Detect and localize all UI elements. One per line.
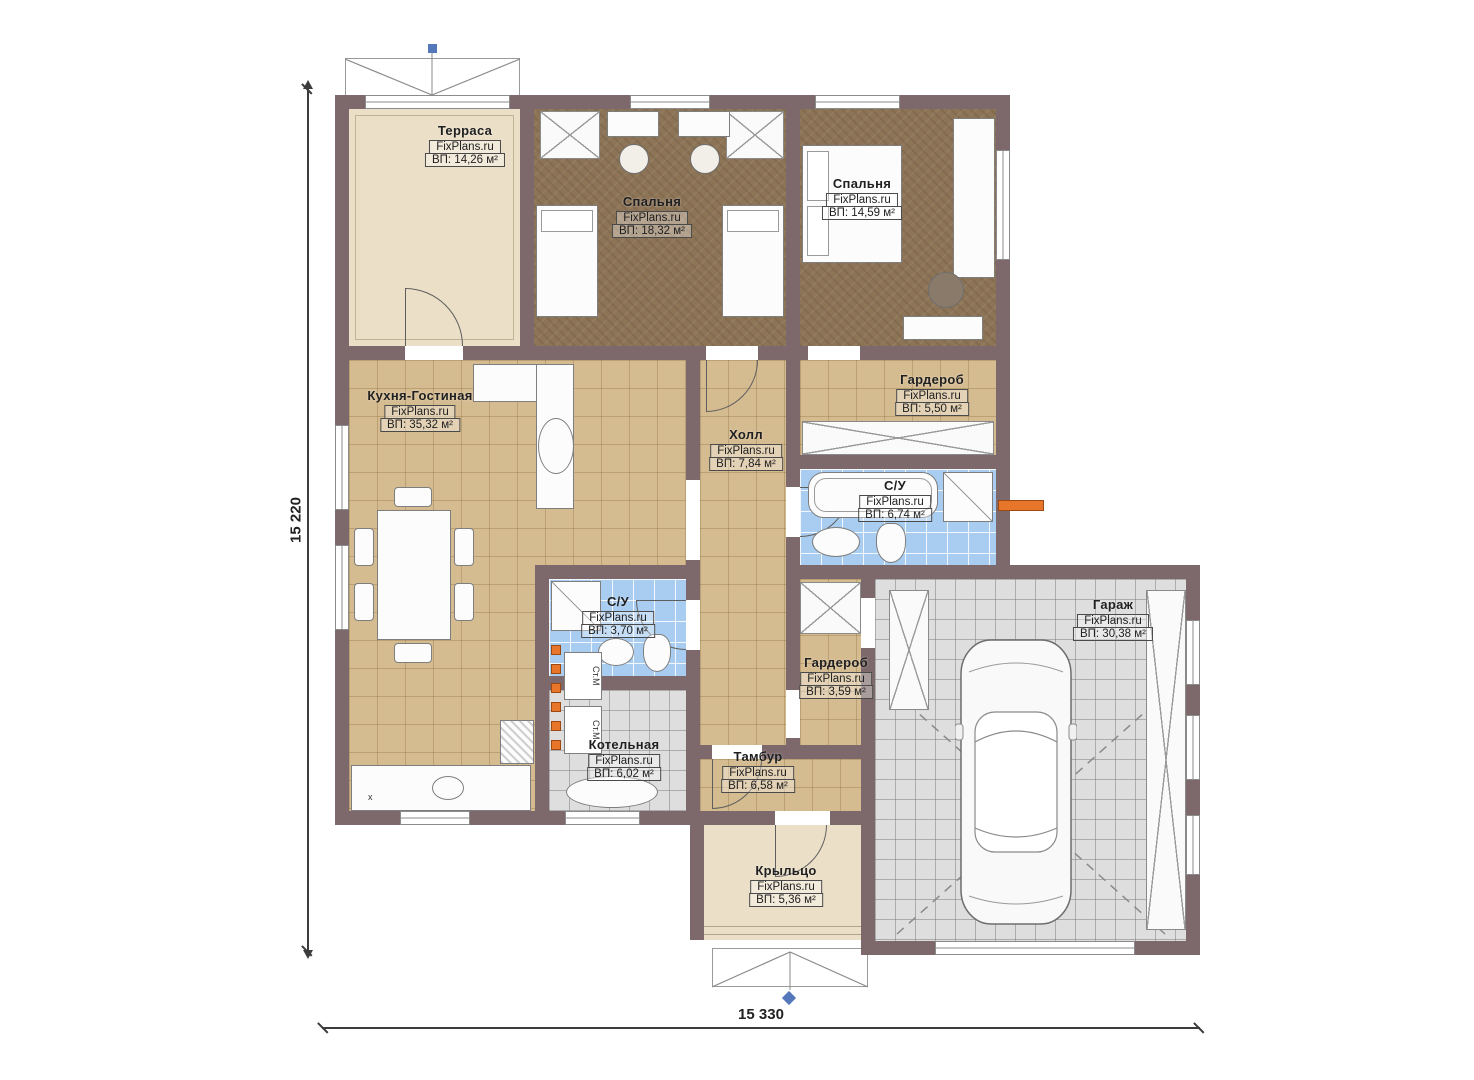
marker-square-blue — [428, 44, 437, 53]
room-name: Спальня — [612, 194, 692, 209]
dining-chair — [394, 643, 432, 663]
door-gap-garage-side — [861, 598, 875, 648]
window-garage-right-1 — [1186, 620, 1200, 685]
toilet — [876, 523, 906, 563]
room-label-kitchen: Кухня-Гостиная FixPlans.ru ВП: 35,32 м² — [367, 388, 472, 432]
room-label-bath2: С/У FixPlans.ru ВП: 3,70 м² — [581, 594, 655, 638]
bed-single — [536, 205, 598, 317]
room-area: ВП: 6,74 м² — [858, 508, 932, 522]
office-chair — [619, 144, 649, 174]
dining-chair — [454, 528, 474, 566]
room-name: Гараж — [1073, 597, 1153, 612]
toilet — [643, 634, 671, 672]
room-label-porch: Крыльцо FixPlans.ru ВП: 5,36 м² — [749, 863, 823, 907]
radiator-dot — [551, 702, 561, 712]
wall-bath2-top — [535, 565, 700, 579]
room-brand: FixPlans.ru — [1077, 614, 1149, 628]
room-name: С/У — [581, 594, 655, 609]
door-gap-bath1 — [786, 487, 800, 537]
room-area: ВП: 3,70 м² — [581, 624, 655, 638]
terrace-canopy — [345, 52, 520, 96]
porch-canopy — [712, 948, 868, 990]
room-name: С/У — [858, 478, 932, 493]
office-chair — [690, 144, 720, 174]
room-label-garage: Гараж FixPlans.ru ВП: 30,38 м² — [1073, 597, 1153, 641]
room-label-bedroom2: Спальня FixPlans.ru ВП: 14,59 м² — [822, 176, 902, 220]
bed-single — [722, 205, 784, 317]
door-gap-terrace — [405, 346, 463, 360]
room-name: Гардероб — [799, 655, 873, 670]
towel-radiator — [998, 500, 1044, 511]
wall-kitchen-bath2 — [535, 565, 549, 825]
door-gap-bedroom2 — [808, 346, 860, 360]
kitchen-sink — [432, 776, 464, 800]
window-boiler-bottom — [565, 811, 640, 825]
room-area: ВП: 35,32 м² — [380, 418, 460, 432]
room-name: Гардероб — [895, 372, 969, 387]
pillow — [727, 210, 779, 232]
room-area: ВП: 14,26 м² — [425, 153, 505, 167]
room-label-bath1: С/У FixPlans.ru ВП: 6,74 м² — [858, 478, 932, 522]
door-gap-bedroom1 — [706, 346, 758, 360]
room-name: Котельная — [587, 737, 661, 752]
pillow — [541, 210, 593, 232]
porch-step-line — [704, 926, 861, 927]
room-area: ВП: 7,84 м² — [709, 457, 783, 471]
dining-chair — [354, 528, 374, 566]
wardrobe-cabinet — [540, 111, 600, 159]
radiator-dot — [551, 740, 561, 750]
room-area: ВП: 18,32 м² — [612, 224, 692, 238]
window-garage-right-3 — [1186, 815, 1200, 875]
room-area: ВП: 6,02 м² — [587, 767, 661, 781]
room-brand: FixPlans.ru — [800, 672, 872, 686]
room-name: Холл — [709, 427, 783, 442]
door-gap-wardrobe2 — [786, 690, 800, 738]
window-terrace-top — [365, 95, 510, 109]
washing-machine: Ст.М — [564, 652, 602, 700]
room-label-wardrobe2: Гардероб FixPlans.ru ВП: 3,59 м² — [799, 655, 873, 699]
garage-rack — [1146, 590, 1186, 930]
room-label-vestibule: Тамбур FixPlans.ru ВП: 6,58 м² — [721, 749, 795, 793]
floor-plan-canvas: x Ст.М Ст.М — [0, 0, 1474, 1080]
room-label-boiler: Котельная FixPlans.ru ВП: 6,02 м² — [587, 737, 661, 781]
wardrobe-cabinet-tall — [953, 118, 995, 278]
wall-garage-top — [786, 565, 1200, 579]
wardrobe-cabinet — [726, 111, 784, 159]
armchair — [928, 272, 964, 308]
room-area: ВП: 5,50 м² — [895, 402, 969, 416]
room-brand: FixPlans.ru — [896, 389, 968, 403]
window-bedroom2-right — [996, 150, 1010, 260]
radiator-dot — [551, 721, 561, 731]
door-gap-bath2 — [686, 600, 700, 650]
closet — [800, 582, 861, 634]
window-kitchen-left-2 — [335, 545, 349, 630]
room-brand: FixPlans.ru — [826, 193, 898, 207]
dining-chair — [394, 487, 432, 507]
shower — [943, 472, 993, 522]
window-garage-right-2 — [1186, 715, 1200, 780]
wall-wardrobe1-bath1 — [786, 455, 1010, 469]
opening-hall-kitchen — [686, 480, 700, 560]
closet-band — [802, 421, 994, 455]
room-area: ВП: 30,38 м² — [1073, 627, 1153, 641]
radiator-dot — [551, 645, 561, 655]
hall-floor — [700, 360, 786, 745]
bathroom-sink — [598, 638, 634, 666]
dining-chair — [354, 583, 374, 621]
room-brand: FixPlans.ru — [582, 611, 654, 625]
dimension-label-width: 15 330 — [738, 1006, 784, 1023]
tv-console — [903, 316, 983, 340]
window-kitchen-bottom — [400, 811, 470, 825]
garage-door-opening — [935, 941, 1135, 955]
dimension-line-vertical — [307, 88, 309, 952]
door-gap-porch — [775, 811, 830, 825]
room-brand: FixPlans.ru — [384, 405, 456, 419]
porch-step-line — [704, 934, 861, 935]
dimension-arrow-down — [303, 950, 313, 959]
radiator-dot — [551, 664, 561, 674]
room-name: Крыльцо — [749, 863, 823, 878]
wall-terrace-bedroom1 — [520, 95, 534, 360]
room-label-hall: Холл FixPlans.ru ВП: 7,84 м² — [709, 427, 783, 471]
room-area: ВП: 3,59 м² — [799, 685, 873, 699]
room-area: ВП: 14,59 м² — [822, 206, 902, 220]
dimension-arrow-up — [303, 80, 313, 89]
room-brand: FixPlans.ru — [710, 444, 782, 458]
room-brand: FixPlans.ru — [722, 766, 794, 780]
dimension-line-horizontal — [322, 1027, 1200, 1029]
wall-porch-left — [690, 825, 704, 940]
dimension-label-height: 15 220 — [288, 497, 305, 543]
dining-table — [377, 510, 451, 640]
room-label-wardrobe1: Гардероб FixPlans.ru ВП: 5,50 м² — [895, 372, 969, 416]
garage-rack — [889, 590, 929, 710]
car-top-view — [955, 632, 1077, 932]
window-kitchen-left-1 — [335, 425, 349, 510]
room-brand: FixPlans.ru — [750, 880, 822, 894]
wall-bedroom1-bedroom2 — [786, 95, 800, 360]
dining-chair — [454, 583, 474, 621]
side-table-oval — [538, 418, 574, 474]
desk — [678, 111, 730, 137]
room-name: Кухня-Гостиная — [367, 388, 472, 403]
room-brand: FixPlans.ru — [588, 754, 660, 768]
room-name: Тамбур — [721, 749, 795, 764]
stove-mark-label: x — [368, 792, 373, 802]
room-brand: FixPlans.ru — [616, 211, 688, 225]
stove — [500, 720, 534, 764]
room-name: Терраса — [425, 123, 505, 138]
marker-diamond-blue — [782, 991, 796, 1005]
room-brand: FixPlans.ru — [429, 140, 501, 154]
room-area: ВП: 6,58 м² — [721, 779, 795, 793]
window-bedroom2-top — [815, 95, 900, 109]
room-name: Спальня — [822, 176, 902, 191]
radiator-dot — [551, 683, 561, 693]
desk — [607, 111, 659, 137]
room-area: ВП: 5,36 м² — [749, 893, 823, 907]
bathroom-sink — [812, 527, 860, 557]
room-label-terrace: Терраса FixPlans.ru ВП: 14,26 м² — [425, 123, 505, 167]
window-bedroom1 — [630, 95, 710, 109]
room-brand: FixPlans.ru — [859, 495, 931, 509]
room-label-bedroom1: Спальня FixPlans.ru ВП: 18,32 м² — [612, 194, 692, 238]
